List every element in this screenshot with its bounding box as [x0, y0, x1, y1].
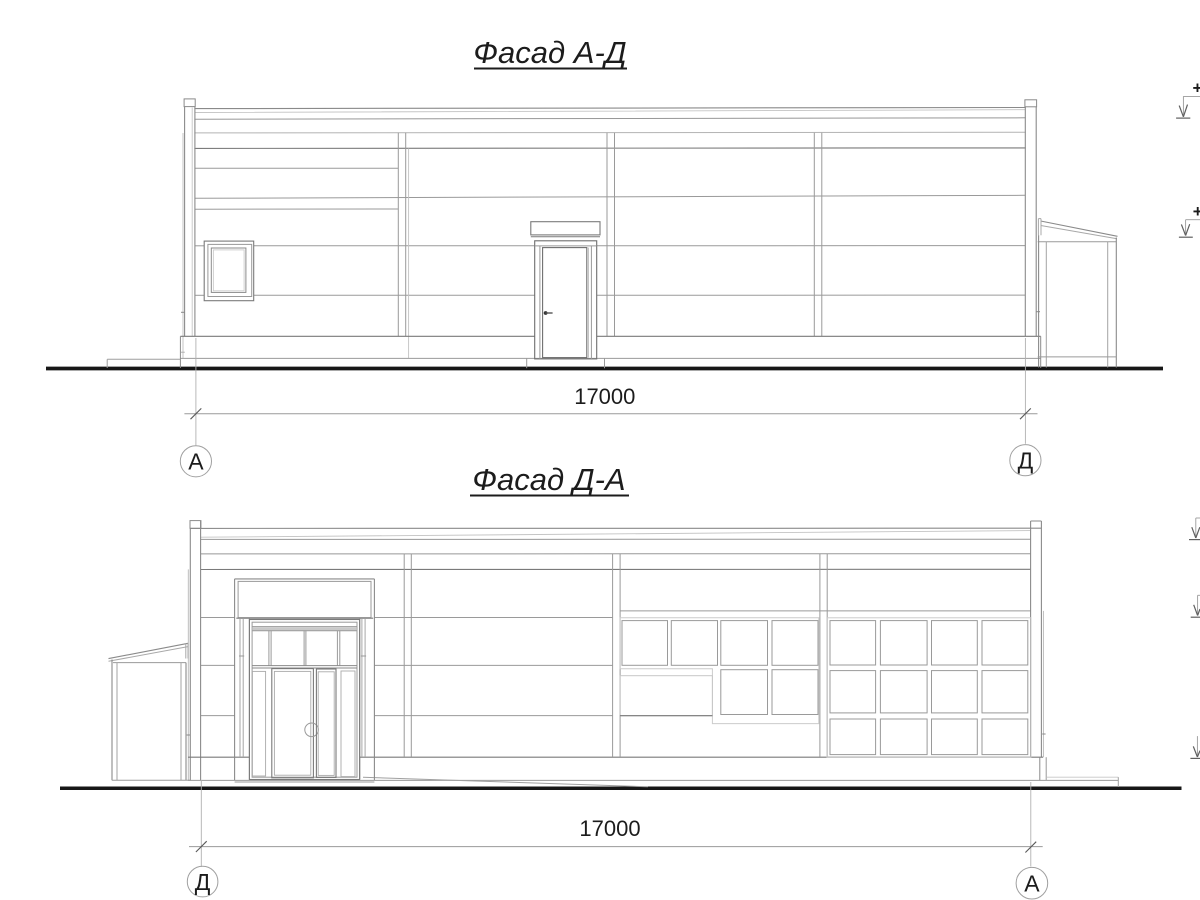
svg-text:17000: 17000 [579, 816, 640, 841]
svg-text:Фасад Д-А: Фасад Д-А [472, 462, 625, 497]
svg-text:+: + [1193, 202, 1200, 221]
svg-text:А: А [188, 449, 204, 475]
svg-text:Д: Д [1018, 448, 1034, 474]
svg-text:+: + [1193, 79, 1200, 98]
svg-text:Фасад А-Д: Фасад А-Д [473, 35, 626, 70]
svg-text:Д: Д [195, 869, 211, 895]
svg-text:А: А [1024, 871, 1040, 897]
svg-text:17000: 17000 [574, 384, 635, 409]
